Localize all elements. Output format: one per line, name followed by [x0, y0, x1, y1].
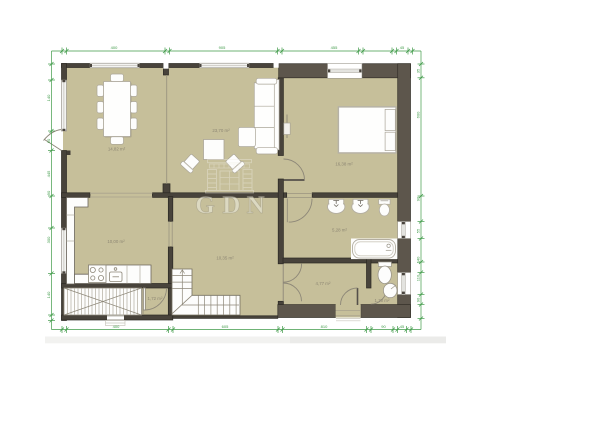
svg-text:90: 90 — [381, 324, 386, 329]
svg-text:140: 140 — [416, 256, 421, 263]
svg-text:60: 60 — [46, 138, 51, 143]
svg-text:140: 140 — [46, 94, 51, 101]
svg-text:45: 45 — [400, 45, 405, 50]
svg-text:810: 810 — [321, 324, 328, 329]
svg-text:4,77 m²: 4,77 m² — [316, 281, 331, 286]
svg-text:90: 90 — [46, 190, 51, 195]
svg-text:455: 455 — [331, 45, 338, 50]
svg-text:N: N — [247, 192, 265, 219]
svg-text:400: 400 — [113, 324, 120, 329]
svg-text:300: 300 — [46, 236, 51, 243]
svg-text:1,72 m²: 1,72 m² — [148, 296, 163, 301]
svg-text:905: 905 — [219, 45, 226, 50]
svg-text:23,70 m²: 23,70 m² — [212, 128, 230, 133]
svg-text:45: 45 — [400, 324, 405, 329]
svg-text:1,70 m²: 1,70 m² — [375, 298, 390, 303]
svg-text:445: 445 — [46, 170, 51, 177]
svg-text:10,35 m²: 10,35 m² — [216, 256, 234, 261]
svg-text:90: 90 — [416, 196, 421, 201]
svg-text:14,82 m²: 14,82 m² — [108, 147, 126, 152]
svg-text:400: 400 — [111, 45, 118, 50]
svg-text:35: 35 — [416, 68, 421, 73]
svg-text:5,28 m²: 5,28 m² — [332, 228, 347, 233]
svg-text:16,38 m²: 16,38 m² — [335, 162, 353, 167]
svg-text:G: G — [195, 192, 214, 219]
svg-text:110: 110 — [416, 274, 421, 281]
svg-text:90: 90 — [416, 297, 421, 302]
svg-text:140: 140 — [46, 291, 51, 298]
svg-text:10,00 m²: 10,00 m² — [107, 239, 125, 244]
svg-text:55: 55 — [416, 228, 421, 233]
svg-text:600: 600 — [416, 111, 421, 118]
svg-text:D: D — [222, 192, 240, 219]
svg-text:605: 605 — [222, 324, 229, 329]
